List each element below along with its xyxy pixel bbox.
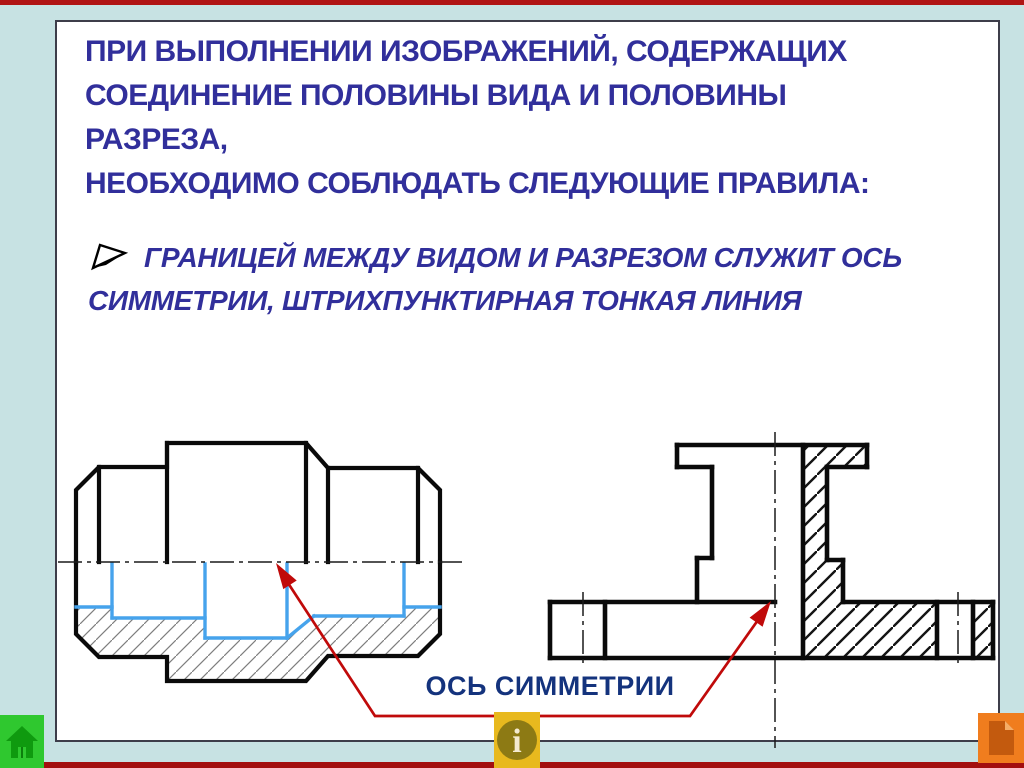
title-line-3: НЕОБХОДИМО СОБЛЮДАТЬ СЛЕДУЮЩИЕ ПРАВИЛА: <box>85 162 915 206</box>
home-icon <box>4 724 40 760</box>
title-line-1: ПРИ ВЫПОЛНЕНИИ ИЗОБРАЖЕНИЙ, СОДЕРЖАЩИХ <box>85 30 915 74</box>
arrow-bullet-icon <box>90 242 128 272</box>
svg-text:i: i <box>512 723 521 760</box>
title-line-2: СОЕДИНЕНИЕ ПОЛОВИНЫ ВИДА И ПОЛОВИНЫ РАЗР… <box>85 74 915 162</box>
document-page-icon <box>983 718 1019 758</box>
slide-title: ПРИ ВЫПОЛНЕНИИ ИЗОБРАЖЕНИЙ, СОДЕРЖАЩИХ С… <box>85 30 915 206</box>
top-red-divider <box>0 0 1024 5</box>
bullet-line-2: СИММЕТРИИ, ШТРИХПУНКТИРНАЯ ТОНКАЯ ЛИНИЯ <box>88 279 928 322</box>
info-icon: i <box>494 715 540 765</box>
slide-stage: ПРИ ВЫПОЛНЕНИИ ИЗОБРАЖЕНИЙ, СОДЕРЖАЩИХ С… <box>0 0 1024 768</box>
bullet-line-1: ГРАНИЦЕЙ МЕЖДУ ВИДОМ И РАЗРЕЗОМ СЛУЖИТ О… <box>144 236 902 279</box>
info-button[interactable]: i <box>494 712 540 768</box>
next-page-button[interactable] <box>978 713 1024 763</box>
axis-of-symmetry-label: ОСЬ СИММЕТРИИ <box>402 671 698 702</box>
home-button[interactable] <box>0 715 44 768</box>
rule-bullet: ГРАНИЦЕЙ МЕЖДУ ВИДОМ И РАЗРЕЗОМ СЛУЖИТ О… <box>88 236 928 322</box>
